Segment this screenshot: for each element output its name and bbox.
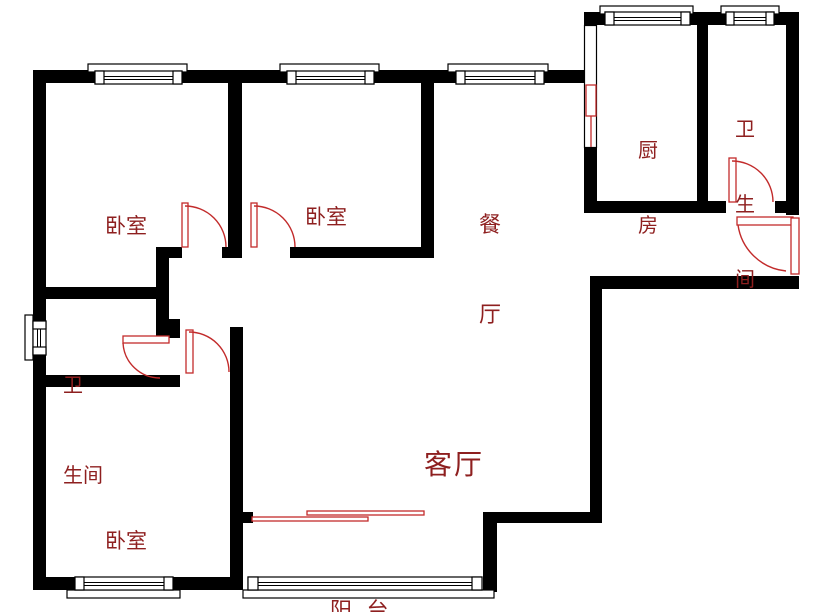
room-label-text: 卧室 xyxy=(105,528,147,554)
bedroom-doors-threshold xyxy=(222,247,242,258)
living-room-bottom-wall xyxy=(497,512,600,523)
room-label-kitchen: 厨 房 xyxy=(638,89,658,289)
dining-window xyxy=(448,64,548,84)
room-label-bedroom-2: 卧室 xyxy=(305,152,347,282)
room-label-text: 卫 xyxy=(735,118,755,143)
right-wall-upper xyxy=(786,12,799,215)
room-label-bedroom-3: 卧室 xyxy=(105,476,147,606)
room-label-text: 卫 xyxy=(63,371,103,401)
walls xyxy=(33,12,799,592)
corridor-wall-stub xyxy=(169,319,180,338)
room-label-text: 厨 xyxy=(638,139,658,164)
room-label-text: 卧室 xyxy=(305,204,347,230)
room-label-dining-room: 餐 厅 xyxy=(479,150,501,390)
room-label-text: 阳 台 xyxy=(330,596,389,612)
bathroom-tr-bottom-wall xyxy=(775,201,799,213)
bathroom-left-window xyxy=(25,315,46,360)
bedrooms-divider-wall xyxy=(228,83,242,258)
balcony-right-wall xyxy=(483,512,497,592)
entry-bottom-wall xyxy=(590,276,799,289)
room-label-text: 厅 xyxy=(479,300,501,330)
room-label-text: 客厅 xyxy=(424,450,484,482)
floor-plan: 卧室 卧室 餐 厅 厨 房 卫 生 间 卫 生间 客厅 卧室 阳 台 xyxy=(0,0,835,612)
balcony-sliding-door xyxy=(252,511,424,521)
room-label-text: 生 xyxy=(735,193,755,218)
bedroom2-window xyxy=(280,64,379,84)
room-label-text: 餐 xyxy=(479,210,501,240)
bedroom2-dining-divider xyxy=(421,83,434,258)
bedroom3-door xyxy=(186,330,229,373)
bedroom3-balcony-divider xyxy=(230,327,243,590)
bedroom1-window xyxy=(88,64,187,84)
room-label-bathroom-left: 卫 生间 xyxy=(63,311,103,551)
kitchen-left-wall-stub xyxy=(584,148,597,201)
room-label-balcony: 阳 台 xyxy=(330,536,389,612)
bathroom-left-door xyxy=(123,336,169,378)
bathroom-left-top-wall xyxy=(33,287,169,299)
bathroom-tr-window xyxy=(721,6,779,25)
room-label-text: 间 xyxy=(735,268,755,293)
room-label-text: 房 xyxy=(638,214,658,239)
bottom-wall-left-segment xyxy=(33,577,75,590)
room-label-text: 生间 xyxy=(63,461,103,491)
room-label-text: 卧室 xyxy=(105,213,147,239)
bedroom2-door xyxy=(251,203,295,247)
kitchen-bathroom-divider xyxy=(697,25,708,201)
bottom-wall-mid-segment xyxy=(173,577,230,590)
living-room-right-wall xyxy=(590,276,602,523)
kitchen-window xyxy=(600,6,693,25)
bedroom1-door xyxy=(182,203,226,247)
room-label-bedroom-1: 卧室 xyxy=(105,161,147,291)
room-label-living-room: 客厅 xyxy=(424,386,484,546)
bathroom-left-bottom-wall xyxy=(33,375,180,387)
room-label-bathroom-top-right: 卫 生 间 xyxy=(735,68,755,343)
